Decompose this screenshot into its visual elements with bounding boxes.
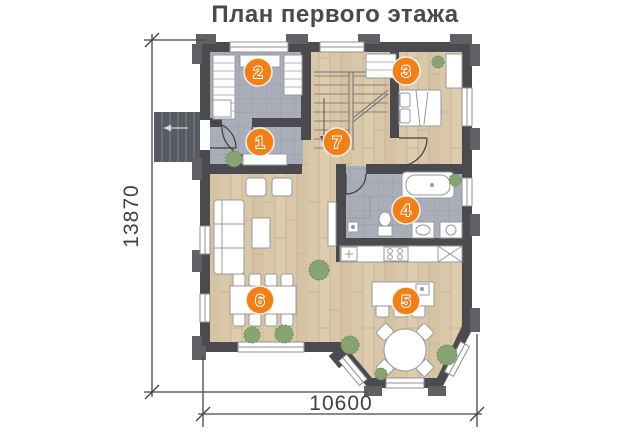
window-living-1 xyxy=(200,226,210,254)
svg-text:1: 1 xyxy=(255,133,264,152)
stair-closet xyxy=(366,54,396,78)
armchair xyxy=(246,178,266,196)
cabinet xyxy=(328,202,336,246)
window-bedroom xyxy=(462,88,472,126)
svg-text:5: 5 xyxy=(401,292,410,311)
window-bathroom xyxy=(462,178,472,206)
armchair xyxy=(272,178,292,196)
dimension-horizontal-label: 10600 xyxy=(309,392,372,415)
room-badge-7: 7 xyxy=(323,128,351,156)
dimension-vertical-label: 13870 xyxy=(120,184,143,247)
bathtub xyxy=(402,172,454,198)
svg-text:4: 4 xyxy=(401,201,411,220)
plant-icon xyxy=(449,174,461,186)
window-stairs xyxy=(320,42,364,52)
coffee-table xyxy=(252,218,270,248)
window-living-2 xyxy=(200,294,210,322)
svg-text:3: 3 xyxy=(401,62,410,81)
room-badge-4: 4 xyxy=(392,196,420,224)
floor-plan-page: План первого этажа xyxy=(0,0,632,433)
sofa xyxy=(214,200,244,274)
room-badge-6: 6 xyxy=(246,286,274,314)
plant-icon xyxy=(375,368,387,380)
fridge xyxy=(438,246,462,262)
sink xyxy=(412,222,434,238)
plant-icon xyxy=(309,260,329,280)
kitchen-sink xyxy=(341,247,357,261)
svg-text:2: 2 xyxy=(253,63,262,82)
plant-icon xyxy=(226,151,242,167)
window-wardrobe xyxy=(230,42,288,52)
room-badge-5: 5 xyxy=(392,287,420,315)
plant-icon xyxy=(275,325,293,343)
plant-icon xyxy=(432,56,444,68)
entrance-steps xyxy=(154,112,202,162)
svg-text:6: 6 xyxy=(255,291,264,310)
entry-doorway xyxy=(200,120,210,150)
window-bay-bottom xyxy=(386,378,424,388)
stove xyxy=(384,247,408,261)
plant-icon xyxy=(437,345,457,365)
plant-icon xyxy=(244,327,260,343)
window-living-bottom xyxy=(238,342,304,352)
room-badge-2: 2 xyxy=(244,58,272,86)
svg-text:7: 7 xyxy=(332,133,341,152)
floor-plan-drawing: 1 2 3 4 5 6 7 13870 10600 xyxy=(0,0,632,433)
plant-icon xyxy=(341,336,359,354)
page-title: План первого этажа xyxy=(211,1,458,29)
bedroom-wardrobe xyxy=(446,54,462,88)
washing-machine xyxy=(440,222,462,238)
room-badge-3: 3 xyxy=(392,57,420,85)
room-badge-1: 1 xyxy=(246,128,274,156)
